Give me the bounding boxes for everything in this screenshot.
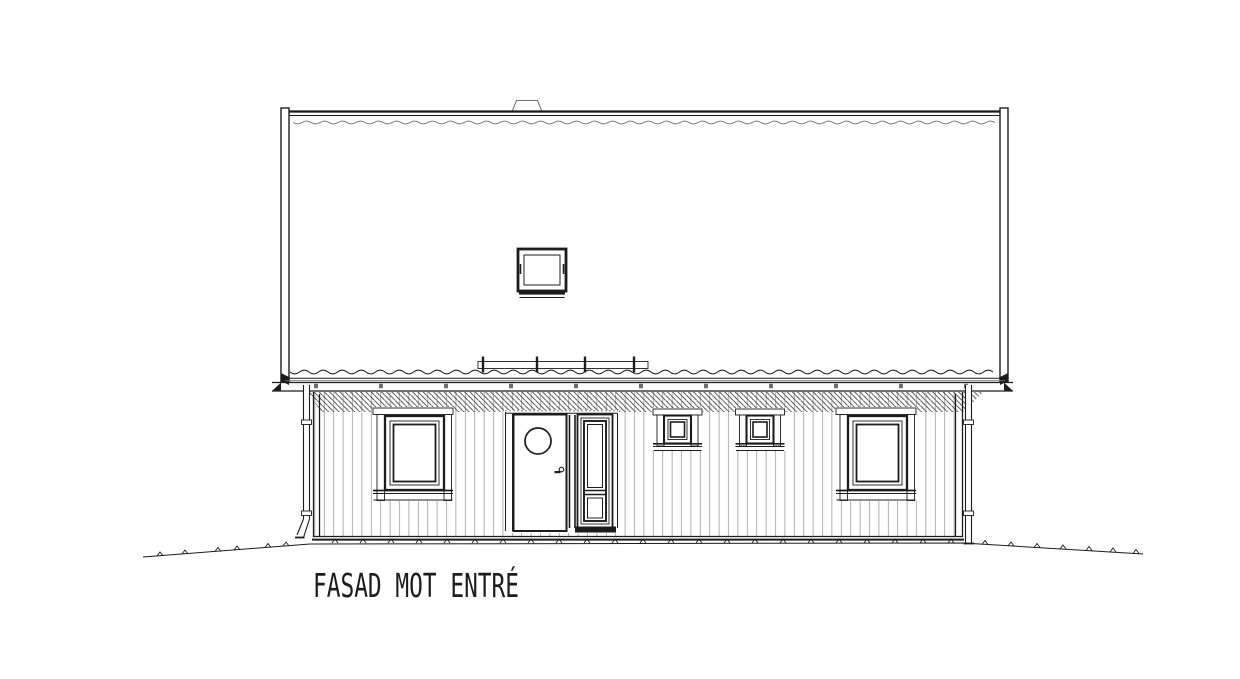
sidelight-glass-upper — [588, 425, 603, 488]
roof-tile-wave-top — [293, 121, 995, 124]
downspout-bracket-1 — [964, 420, 974, 425]
roof-window-sill — [519, 291, 565, 295]
roof-tile-wave-eaves — [290, 370, 993, 374]
facade-elevation-sheet: FASAD MOT ENTRÉ — [0, 0, 1240, 679]
gutter-end-left — [272, 383, 281, 392]
downspout-pipe-fill — [304, 385, 310, 519]
drawing-title: FASAD MOT ENTRÉ — [313, 565, 519, 605]
window-small-2 — [735, 408, 786, 451]
gutter-end-right — [1004, 383, 1013, 392]
window-right — [835, 407, 917, 501]
downspout-elbow-fill — [297, 519, 310, 538]
snow-guard-rail — [478, 362, 648, 369]
elevation-drawing: FASAD MOT ENTRÉ — [0, 0, 1240, 679]
door-threshold — [575, 527, 616, 533]
eaves-fascia-gutter — [272, 383, 1013, 392]
window-trim-left — [377, 415, 385, 501]
downspout-bracket-2 — [964, 511, 974, 516]
snow-guard — [478, 357, 648, 373]
roof-window-glass — [524, 255, 560, 285]
ridge-vent — [512, 101, 542, 112]
ground — [143, 539, 1143, 557]
downspout-pipe-fill — [966, 385, 972, 543]
window-glass — [394, 425, 436, 482]
window-left — [372, 407, 454, 501]
ground-line — [143, 543, 1143, 557]
downspout-right — [964, 385, 975, 544]
entrance-door — [504, 410, 619, 533]
snow-guard-posts — [483, 357, 634, 373]
downspout-bracket-2 — [302, 511, 312, 516]
window-small-1 — [652, 408, 703, 451]
window-glass — [671, 422, 685, 437]
door-porthole-window — [525, 428, 551, 454]
barge-board-left — [281, 108, 289, 382]
roof-window — [518, 249, 566, 298]
downspout-bracket-1 — [302, 420, 312, 425]
grass-tufts — [157, 539, 1139, 556]
downspout-left — [295, 385, 312, 538]
barge-board-right — [1000, 108, 1008, 382]
roof — [272, 101, 1013, 392]
sidelight-glass-lower — [588, 498, 603, 518]
